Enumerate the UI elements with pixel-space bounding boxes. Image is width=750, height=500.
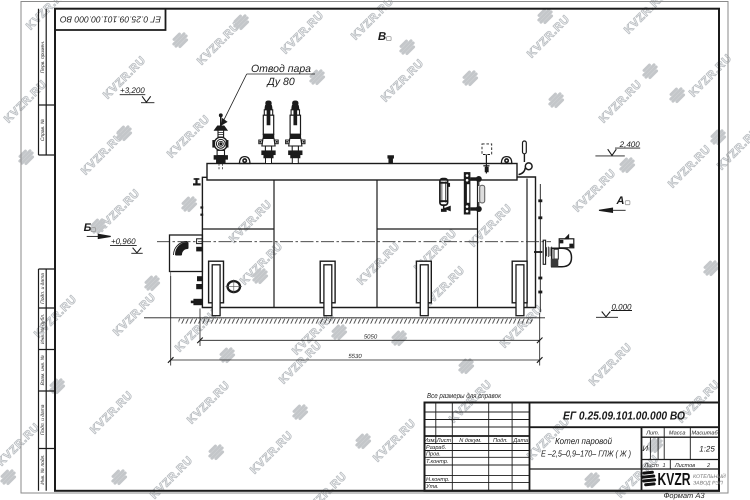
svg-text:KVZR.RU: KVZR.RU <box>571 167 618 214</box>
svg-text:Взам. инв. №: Взам. инв. № <box>40 354 46 385</box>
svg-text:KVZR.RU: KVZR.RU <box>165 113 212 160</box>
svg-text:Лит.: Лит. <box>645 431 659 437</box>
svg-text:KVZR.RU: KVZR.RU <box>666 143 713 190</box>
svg-text:Справ. №: Справ. № <box>40 118 46 141</box>
svg-text:Подп. и дата: Подп. и дата <box>40 404 46 435</box>
svg-text:0,000: 0,000 <box>611 302 632 311</box>
svg-text:N докум.: N докум. <box>459 437 482 444</box>
svg-text:Б: Б <box>84 222 92 234</box>
svg-text:Формат А3: Формат А3 <box>663 491 705 500</box>
svg-text:5050: 5050 <box>364 334 378 341</box>
svg-text:KVZR.RU: KVZR.RU <box>248 429 295 476</box>
svg-text:KVZR.RU: KVZR.RU <box>302 470 349 500</box>
svg-text:5530: 5530 <box>348 353 362 360</box>
svg-text:Перв. примен.: Перв. примен. <box>40 41 46 74</box>
svg-text:KVZR.RU: KVZR.RU <box>587 341 634 388</box>
svg-text:Н.контр.: Н.контр. <box>426 477 450 483</box>
svg-text:И: И <box>642 444 648 453</box>
svg-text:Котел паровой: Котел паровой <box>555 436 612 446</box>
svg-text:Утв.: Утв. <box>425 484 439 490</box>
svg-text:КОТЕЛЬНЫЙ: КОТЕЛЬНЫЙ <box>693 473 726 480</box>
svg-text:KVZR.RU: KVZR.RU <box>371 417 418 464</box>
svg-text:Подп.: Подп. <box>493 437 508 444</box>
svg-text:А: А <box>616 195 625 207</box>
svg-text:Все размеры для справок: Все размеры для справок <box>427 391 502 400</box>
svg-text:ЗАВОД РЭП: ЗАВОД РЭП <box>693 481 723 487</box>
svg-text:Пров.: Пров. <box>426 452 441 458</box>
svg-text:В: В <box>378 31 386 43</box>
svg-text:KVZR.RU: KVZR.RU <box>2 78 49 125</box>
svg-text:2: 2 <box>706 463 711 469</box>
svg-text:Масса: Масса <box>669 431 686 437</box>
svg-text:KVZR: KVZR <box>658 469 691 489</box>
svg-text:+0,960: +0,960 <box>111 237 136 246</box>
svg-text:Лист: Лист <box>436 438 452 444</box>
svg-text:KVZR.RU: KVZR.RU <box>349 0 396 43</box>
svg-text:ЕГ 0.25.09.101.00.000 ВО: ЕГ 0.25.09.101.00.000 ВО <box>563 410 685 423</box>
svg-text:Ду 80: Ду 80 <box>266 76 295 88</box>
svg-text:KVZR.RU: KVZR.RU <box>597 78 644 125</box>
svg-text:KVZR.RU: KVZR.RU <box>111 291 158 338</box>
svg-text:KVZR.RU: KVZR.RU <box>279 9 326 56</box>
svg-text:Е –2,5–0,9–170– ГЛЖ ( Ж ): Е –2,5–0,9–170– ГЛЖ ( Ж ) <box>541 449 631 459</box>
svg-text:ЕГ 0.25.09.101.00.000 ВО: ЕГ 0.25.09.101.00.000 ВО <box>60 15 161 25</box>
svg-text:KVZR.RU: KVZR.RU <box>379 57 426 104</box>
svg-text:Отвод пара: Отвод пара <box>251 63 311 75</box>
svg-text:Дата: Дата <box>512 438 528 444</box>
svg-text:KVZR.RU: KVZR.RU <box>227 198 274 245</box>
svg-text:Подп. и дата: Подп. и дата <box>40 273 46 304</box>
svg-text:Т.контр.: Т.контр. <box>426 459 449 465</box>
svg-text:1:25: 1:25 <box>699 445 715 454</box>
svg-text:KVZR.RU: KVZR.RU <box>355 240 402 287</box>
svg-text:Разраб.: Разраб. <box>426 444 446 451</box>
svg-text:Инв. № подл.: Инв. № подл. <box>40 454 46 484</box>
svg-text:Масштаб: Масштаб <box>692 430 719 437</box>
svg-text:KVZR.RU: KVZR.RU <box>185 379 232 426</box>
svg-text:2,400: 2,400 <box>619 140 641 149</box>
svg-text:KVZR.RU: KVZR.RU <box>687 52 734 99</box>
svg-text:+3,200: +3,200 <box>120 86 145 95</box>
svg-text:KVZR.RU: KVZR.RU <box>622 0 669 37</box>
svg-text:Изм.: Изм. <box>424 438 436 444</box>
svg-text:Инв. № дубл.: Инв. № дубл. <box>40 314 46 344</box>
svg-text:KVZR.RU: KVZR.RU <box>88 389 135 436</box>
